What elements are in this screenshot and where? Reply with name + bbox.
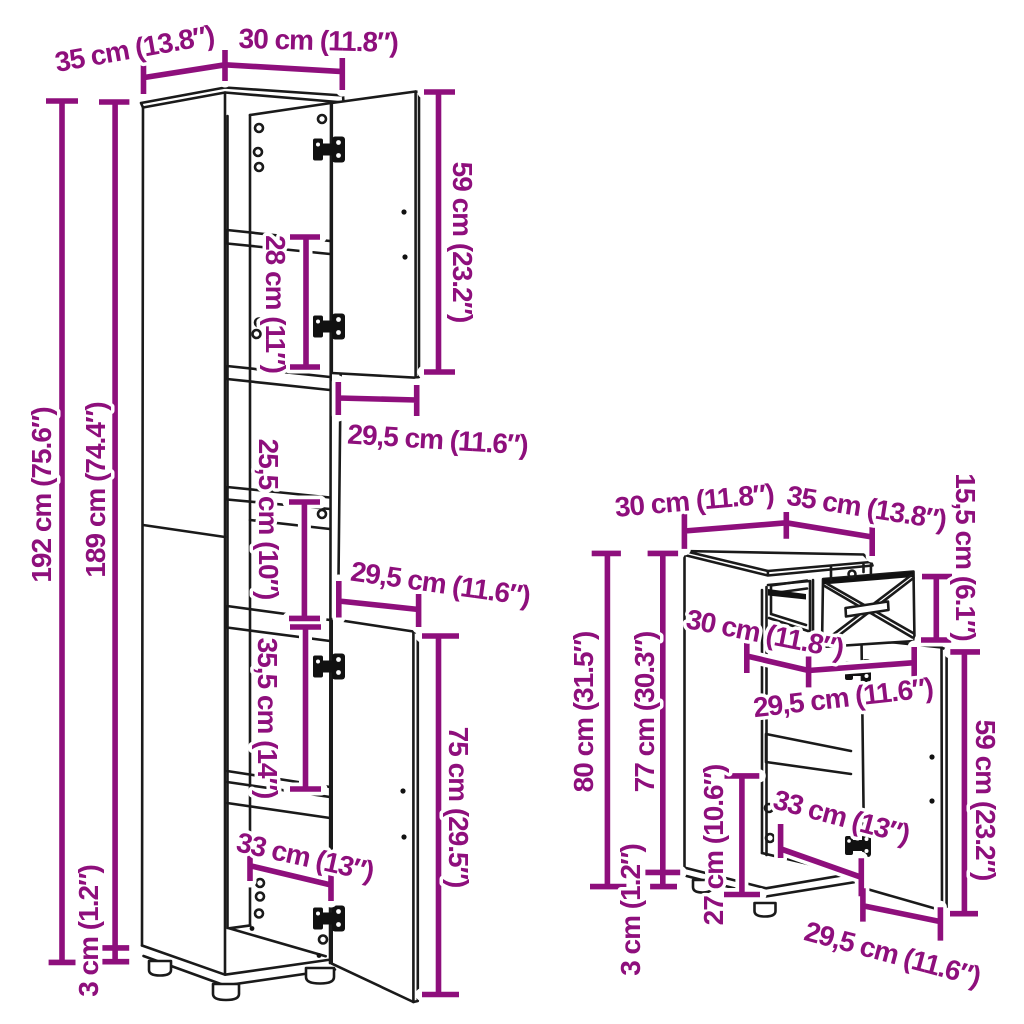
svg-text:30 cm (11.8″): 30 cm (11.8″) <box>238 23 398 58</box>
svg-text:80 cm (31.5″): 80 cm (31.5″) <box>568 632 599 793</box>
svg-text:75 cm (29.5″): 75 cm (29.5″) <box>443 727 474 888</box>
svg-text:15,5 cm (6.1″): 15,5 cm (6.1″) <box>950 473 981 641</box>
svg-text:3 cm (1.2″): 3 cm (1.2″) <box>615 844 646 976</box>
svg-text:192 cm (75.6″): 192 cm (75.6″) <box>26 407 57 582</box>
svg-text:27 cm (10.6″): 27 cm (10.6″) <box>698 765 729 926</box>
svg-text:3 cm (1.2″): 3 cm (1.2″) <box>73 865 104 997</box>
svg-text:28 cm (11″): 28 cm (11″) <box>260 235 291 373</box>
svg-text:77 cm (30.3″): 77 cm (30.3″) <box>629 632 660 793</box>
svg-text:25,5 cm (10″): 25,5 cm (10″) <box>253 439 284 600</box>
svg-text:59 cm (23.2″): 59 cm (23.2″) <box>970 720 1001 881</box>
svg-text:35,5 cm (14″): 35,5 cm (14″) <box>252 638 283 799</box>
svg-text:189 cm (74.4″): 189 cm (74.4″) <box>80 402 111 577</box>
svg-text:59 cm (23.2″): 59 cm (23.2″) <box>447 162 478 323</box>
